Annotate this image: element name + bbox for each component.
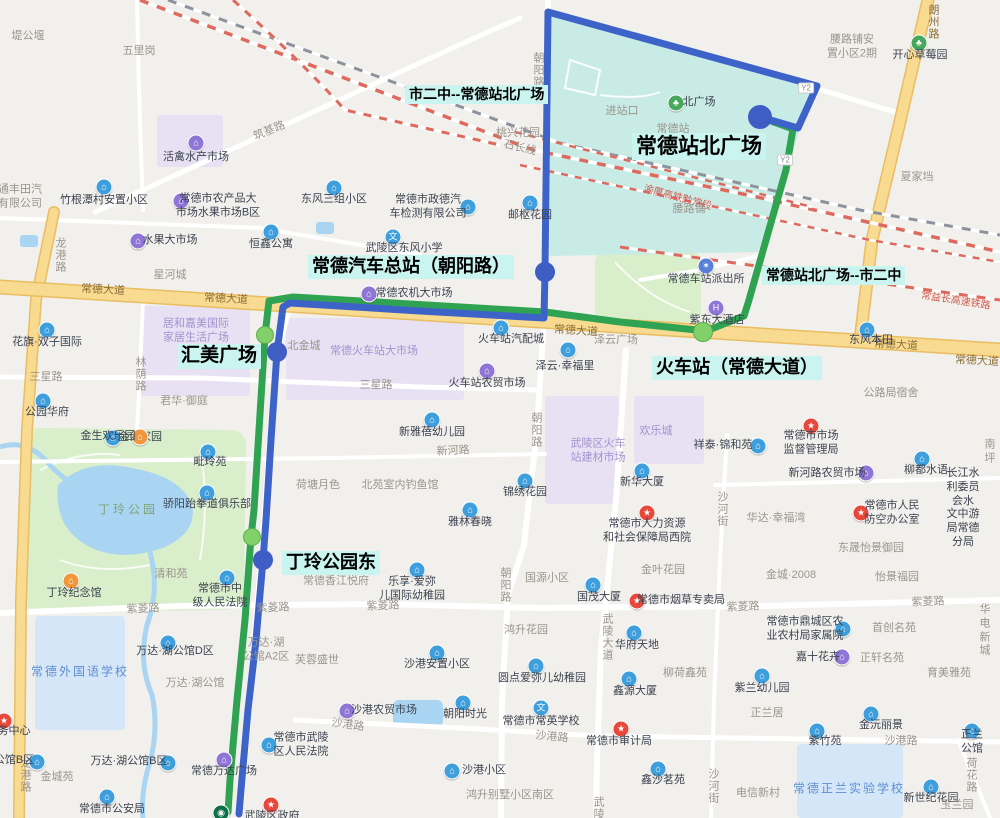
poi-label[interactable]: 邮枢花园 — [508, 209, 552, 223]
poi-label: 华达·幸福湾 — [747, 512, 806, 526]
poi-label: 星河城 — [154, 269, 187, 283]
poi-label: 公路局宿舍 — [864, 387, 919, 401]
road-label: 沙港路 — [535, 727, 569, 746]
poi-label[interactable]: 万达·湖公馆D区 — [136, 645, 214, 659]
poi-label: 荷塘月色 — [296, 479, 340, 493]
green-stop-dot[interactable] — [243, 528, 261, 546]
green-stop-dot[interactable] — [256, 326, 274, 344]
poi-label[interactable]: 常德市公安局 — [79, 803, 145, 817]
poi-label[interactable]: 活禽水产市场 — [163, 151, 229, 165]
poi-label: 玉兰园 — [941, 799, 974, 813]
stop-label[interactable]: 丁玲公园东 — [282, 551, 380, 575]
poi-label[interactable]: 公园华府 — [25, 406, 69, 420]
poi-label[interactable]: 毗玲苑 — [194, 456, 227, 470]
poi-label: 五里岗 — [123, 45, 156, 59]
stop-label[interactable]: 常德站北广场--市二中 — [762, 266, 905, 285]
poi-label[interactable]: 务中心 — [0, 725, 31, 739]
poi-label: 居和嘉美国际 家居生活广场 — [163, 317, 229, 345]
poi-label: 丁玲公园 — [98, 503, 158, 518]
poi-label: 金城苑 — [41, 771, 74, 785]
poi-label[interactable]: 常德市武陵 区人民法院 — [274, 731, 329, 759]
poi-label[interactable]: 公馆B区 — [0, 754, 34, 768]
poi-label[interactable]: 常德市市场 监督管理局 — [784, 429, 839, 457]
road-label: 常德大道 — [81, 280, 126, 298]
poi-label[interactable]: 常德市烟草专卖局 — [637, 594, 725, 608]
coffee-icon[interactable]: ◉ — [213, 805, 230, 818]
poi-label: 进站口 — [606, 105, 639, 119]
road-label: 沙河街 — [705, 768, 721, 804]
road-label: 常德大道 — [553, 320, 598, 339]
poi-label[interactable]: 花旗·双子国际 — [12, 336, 82, 350]
road-label: 沙河街 — [714, 491, 730, 527]
poi-label[interactable]: 新华大厦 — [620, 476, 664, 490]
poi-label: 欢乐城 — [640, 425, 673, 439]
poi-label: 常德香江悦府 — [303, 575, 369, 589]
poi-label: 华电新城 — [978, 604, 993, 659]
poi-label[interactable]: 常德市人民 防空办公室 — [865, 499, 920, 527]
poi-label[interactable]: 骄阳跆拳道俱乐部 — [163, 498, 251, 512]
poi-label[interactable]: 常德市人力资源 和社会保障局西院 — [603, 517, 691, 545]
map-canvas[interactable]: 常德大道常德大道常德大道常德大道常德大道朗州路龙港路龙港路朝阳路朝阳路朝阳路武陵… — [0, 0, 1000, 818]
poi-label: 正轩名苑 — [860, 652, 904, 666]
poi-label[interactable]: 新雅蓓幼儿园 — [399, 426, 465, 440]
building-icon[interactable]: ⌂ — [96, 179, 113, 196]
police-icon[interactable]: ✶ — [698, 258, 715, 275]
poi-label[interactable]: 国茂大厦 — [577, 591, 621, 605]
poi-label: 君华·御庭 — [160, 395, 208, 409]
green-stop-dot[interactable] — [693, 322, 713, 342]
poi-label: 常德火车站大市场 — [330, 345, 418, 359]
poi-label[interactable]: 武陵区东风小学 — [366, 242, 443, 256]
road-label: 朗州路 — [925, 4, 941, 40]
blue-stop-dot[interactable] — [748, 105, 772, 129]
poi-label: 北苑室内钓鱼馆 — [362, 479, 439, 493]
stop-label[interactable]: 常德站北广场 — [632, 133, 766, 160]
poi-label[interactable]: 朝阳时光 — [443, 708, 487, 722]
poi-label: 泽云广场 — [594, 334, 638, 348]
road-label: 武陵 — [590, 796, 606, 818]
stop-label[interactable]: 常德汽车总站（朝阳路） — [308, 255, 514, 279]
poi-label: 夏家垱 — [901, 171, 934, 185]
poi-label: 鸿升别墅小区南区 — [466, 789, 554, 803]
poi-label[interactable]: 嘉十花卉 — [796, 651, 840, 665]
poi-label: 柳荷鑫苑 — [663, 667, 707, 681]
building-icon[interactable]: ⌂ — [444, 763, 461, 780]
poi-label[interactable]: 新河路农贸市场 — [789, 467, 866, 481]
road-label: 龙港路 — [52, 237, 68, 273]
road-label: 三星路 — [30, 368, 63, 384]
poi-label: 腰路铺安 置小区2期 — [827, 33, 877, 61]
poi-label[interactable]: 沙港小区 — [462, 764, 506, 778]
poi-label[interactable]: 常德市政德汽 车检测有限公司 — [390, 193, 467, 221]
road-label: 新河路 — [436, 441, 470, 459]
poi-label[interactable]: 东风本田 — [849, 334, 893, 348]
poi-label[interactable]: 常德市鼎城区农 业农村局家属院 — [767, 615, 844, 643]
poi-label: 常德正兰实验学校 — [793, 782, 905, 797]
poi-label: 东晟怡景御园 — [838, 542, 904, 556]
poi-label: 北金城 — [288, 340, 321, 354]
poi-label: 鸿升花园 — [504, 624, 548, 638]
poi-label: 金城·2008 — [766, 569, 816, 583]
poi-label[interactable]: 常德车站派出所 — [668, 273, 745, 287]
road-label: 朝阳路 — [528, 412, 544, 448]
poi-label[interactable]: 祥泰·锦和苑 — [694, 439, 753, 453]
poi-label: 电信新村 — [736, 787, 780, 801]
blue-stop-dot[interactable] — [267, 342, 287, 362]
poi-label: 通丰田汽 有限公司 — [0, 183, 42, 211]
blue-stop-dot[interactable] — [535, 262, 555, 282]
poi-label[interactable]: 正兰公馆 — [958, 728, 986, 756]
poi-label: 武陵区火车 站建材市场 — [571, 437, 626, 465]
stop-label[interactable]: 汇美广场 — [177, 344, 261, 369]
poi-label: 芙蓉盛世 — [295, 654, 339, 668]
poi-label: 桃兴花园 — [496, 127, 540, 141]
poi-label[interactable]: 常德万达广场 — [191, 765, 257, 779]
poi-label: 南坪 — [985, 438, 996, 466]
poi-label[interactable]: 火车站汽配城 — [478, 333, 544, 347]
stop-label[interactable]: 火车站（常德大道） — [652, 356, 822, 380]
poi-label[interactable]: 竹根潭村安置小区 — [60, 194, 148, 208]
poi-label[interactable]: 武陵区政府 — [245, 810, 300, 818]
poi-label[interactable]: 恒鑫公寓 — [249, 238, 293, 252]
road-label: 常德大道 — [204, 289, 249, 307]
railway-label: 常益长高速铁路 — [920, 286, 991, 312]
poi-label[interactable]: 圆点爱弥儿幼稚园 — [498, 672, 586, 686]
poi-label[interactable]: 常德市农产品大 市场水果市场B区 — [176, 192, 260, 220]
road-shield-badge: Y2 — [798, 83, 814, 94]
poi-label[interactable]: 沙港农贸市场 — [351, 704, 417, 718]
poi-label[interactable]: 鑫沙茗苑 — [641, 774, 685, 788]
poi-label: 金叶花园 — [641, 564, 685, 578]
road-label: 筑基路 — [251, 116, 288, 143]
poi-label: 正兰居 — [751, 707, 784, 721]
poi-label[interactable]: 鑫源大厦 — [613, 685, 657, 699]
poi-label: 万达·湖 公馆A2区 — [243, 636, 289, 664]
poi-label[interactable]: 金沅丽景 — [859, 719, 903, 733]
road-label: 常德大道 — [955, 351, 1000, 369]
poi-label[interactable]: 柳都水语 — [904, 464, 948, 478]
road-label: 荷花路 — [963, 757, 979, 793]
poi-label[interactable]: 沙港安置小区 — [404, 658, 470, 672]
poi-label: 清和苑 — [155, 568, 188, 582]
poi-label[interactable]: 常德农机大市场 — [376, 287, 453, 301]
building-icon[interactable]: ⌂ — [560, 342, 577, 359]
road-label: 三星路 — [360, 376, 393, 392]
poi-label: 育美雅苑 — [927, 667, 971, 681]
poi-label[interactable]: 乐享·爱弥 儿国际幼稚园 — [379, 575, 445, 603]
poi-label[interactable]: 东风三组小区 — [301, 193, 367, 207]
road-shield-badge: Y2 — [777, 155, 793, 166]
poi-label[interactable]: 紫兰幼儿园 — [735, 682, 790, 696]
poi-label[interactable]: 常德市常英学校 — [503, 715, 580, 729]
stop-label[interactable]: 市二中--常德站北广场 — [405, 85, 548, 104]
road-label: 朝阳路 — [497, 567, 513, 603]
road-label: 朝阳路 — [530, 52, 546, 88]
road-label: 紫菱路 — [726, 597, 760, 614]
blue-stop-dot[interactable] — [253, 550, 273, 570]
poi-label[interactable]: 丁玲纪念馆 — [47, 587, 102, 601]
poi-label[interactable]: 北广场 — [683, 96, 716, 110]
road-label: 紫菱路 — [126, 599, 160, 616]
poi-label: 首创名苑 — [872, 622, 916, 636]
poi-label: 长江水利委员会水 文中游局常德分局 — [945, 467, 982, 550]
poi-label[interactable]: 泽云·幸福里 — [536, 360, 595, 374]
road-label: 紫菱路 — [911, 592, 945, 609]
school-icon[interactable]: 文 — [533, 700, 550, 717]
poi-label: 怡景福园 — [875, 571, 919, 585]
poi-label[interactable]: 开心草莓园 — [893, 49, 948, 63]
poi-label[interactable]: 常德市审计局 — [586, 735, 652, 749]
poi-label[interactable]: 金生欢乐园 — [81, 430, 136, 444]
poi-label[interactable]: 常德市中 级人民法院 — [193, 582, 248, 610]
road-label: 武陵大道 — [599, 613, 615, 661]
road-label: 林荫路 — [132, 356, 148, 392]
poi-label[interactable]: 万达·湖公馆B区 — [91, 755, 168, 769]
poi-label: 腰路铺 — [673, 203, 706, 217]
poi-label: 堤公堰 — [12, 30, 45, 44]
poi-label[interactable]: 水果大市场 — [143, 234, 198, 248]
label-overlay: 常德大道常德大道常德大道常德大道常德大道朗州路龙港路龙港路朝阳路朝阳路朝阳路武陵… — [0, 0, 1000, 818]
poi-label: 万达·湖公馆 — [166, 677, 225, 691]
road-label: 沙港路 — [885, 732, 918, 748]
poi-label[interactable]: 火车站农贸市场 — [449, 377, 526, 391]
poi-label[interactable]: 华府天地 — [615, 639, 659, 653]
poi-label: 国源小区 — [525, 572, 569, 586]
poi-label[interactable]: 紫竹苑 — [809, 735, 842, 749]
poi-label[interactable]: 锦绣花园 — [503, 486, 547, 500]
poi-label: 常德外国语学校 — [31, 665, 129, 680]
road-label: 紫菱路 — [256, 598, 290, 615]
poi-label[interactable]: 雅林春晓 — [448, 516, 492, 530]
market-icon[interactable]: ⌂ — [188, 135, 205, 152]
